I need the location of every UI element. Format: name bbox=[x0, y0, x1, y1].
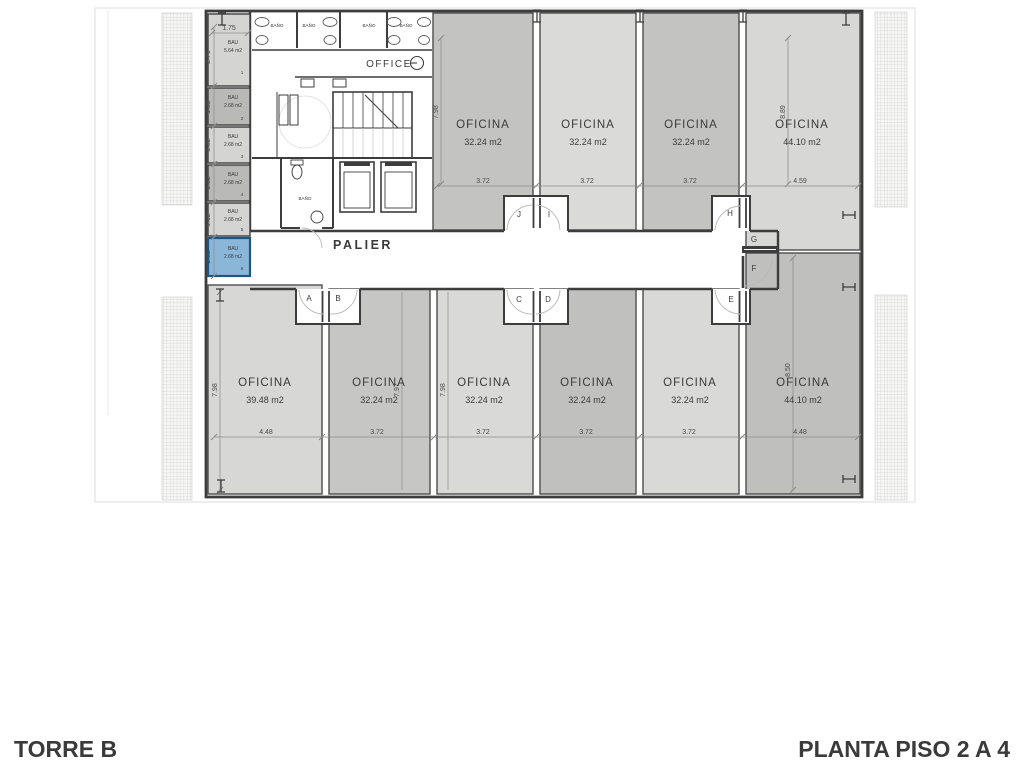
office-bottom-3-area: 32.24 m2 bbox=[465, 395, 503, 405]
office-bottom-4-label: OFICINA bbox=[560, 377, 614, 389]
door-letter-i: I bbox=[548, 210, 550, 219]
door-letter-c: C bbox=[516, 295, 522, 304]
bau-3-num: 3 bbox=[241, 154, 244, 159]
office-top-2-label: OFICINA bbox=[561, 119, 615, 131]
dim-bot-6: 4.48 bbox=[793, 429, 807, 436]
bau-2-area: 2.68 m2 bbox=[224, 103, 242, 109]
dim-bot-h3: 7.98 bbox=[440, 383, 447, 397]
office-bottom-4-area: 32.24 m2 bbox=[568, 395, 606, 405]
dim-bau-w: 1.75 bbox=[222, 25, 236, 32]
bau-4-num: 4 bbox=[241, 192, 244, 197]
dim-top-1: 3.72 bbox=[476, 178, 490, 185]
dim-bot-4: 3.72 bbox=[579, 429, 593, 436]
door-g-bar bbox=[742, 246, 778, 253]
office-bottom-5-area: 32.24 m2 bbox=[671, 395, 709, 405]
office-top-1-area: 32.24 m2 bbox=[464, 137, 502, 147]
dim-bau-6: 1.32 bbox=[205, 250, 212, 264]
bano-label-4: BAÑO bbox=[399, 22, 412, 28]
bano-label-core: BAÑO bbox=[298, 195, 311, 201]
plan-title: PLANTA PISO 2 A 4 bbox=[798, 736, 1010, 762]
office-bottom-6-area: 44.10 m2 bbox=[784, 395, 822, 405]
office-top-2-area: 32.24 m2 bbox=[569, 137, 607, 147]
bau-1-area: 5.64 m2 bbox=[224, 48, 242, 54]
dim-top-2: 3.72 bbox=[580, 178, 594, 185]
bano-label-1: BAÑO bbox=[270, 22, 283, 28]
office-bottom-1-area: 39.48 m2 bbox=[246, 395, 284, 405]
dim-top-h1: 7.98 bbox=[433, 105, 440, 119]
bau-4-title: BAU bbox=[228, 172, 239, 178]
office-top-3-area: 32.24 m2 bbox=[672, 137, 710, 147]
bano-label-2: BAÑO bbox=[302, 22, 315, 28]
bau-5-area: 2.68 m2 bbox=[224, 217, 242, 223]
bau-2-title: BAU bbox=[228, 95, 239, 101]
dim-bot-3: 3.72 bbox=[476, 429, 490, 436]
door-letter-e: E bbox=[728, 295, 733, 304]
office-top-1-label: OFICINA bbox=[456, 119, 510, 131]
bau-1-num: 1 bbox=[241, 70, 244, 75]
bau-4-area: 2.68 m2 bbox=[224, 180, 242, 186]
door-letter-j: J bbox=[517, 210, 521, 219]
bau-6-area: 2.68 m2 bbox=[224, 254, 242, 260]
dim-bot-2: 3.72 bbox=[370, 429, 384, 436]
hatch-right-bottom bbox=[875, 295, 907, 500]
palier-label: PALIER bbox=[333, 238, 393, 252]
dim-bau-1: 2.71 bbox=[205, 50, 212, 64]
dim-top-4: 4.59 bbox=[793, 178, 807, 185]
bau-5-title: BAU bbox=[228, 209, 239, 215]
footer: TORRE B PLANTA PISO 2 A 4 bbox=[14, 736, 1010, 762]
office-bottom-3-label: OFICINA bbox=[457, 377, 511, 389]
door-letter-g: G bbox=[751, 235, 757, 244]
door-letter-b: B bbox=[335, 294, 340, 303]
floor-plan-drawing: BAU 5.64 m2 1 BAU 2.68 m2 2 BAU 2.68 m2 … bbox=[0, 0, 1024, 768]
office-bottom-1-label: OFICINA bbox=[238, 377, 292, 389]
bau-2-num: 2 bbox=[241, 116, 244, 121]
door-letter-f: F bbox=[752, 264, 757, 273]
dim-bau-2: 1.32 bbox=[205, 100, 212, 114]
tower-title: TORRE B bbox=[14, 736, 117, 762]
hatch-left-top bbox=[162, 13, 192, 205]
bau-3-title: BAU bbox=[228, 134, 239, 140]
dim-bot-1: 4.48 bbox=[259, 429, 273, 436]
dim-top-3: 3.72 bbox=[683, 178, 697, 185]
hatch-right-top bbox=[875, 12, 907, 207]
office-bottom-2-area: 32.24 m2 bbox=[360, 395, 398, 405]
door-letter-h: H bbox=[727, 209, 733, 218]
bau-1-title: BAU bbox=[228, 40, 239, 46]
office-top-4-area: 44.10 m2 bbox=[783, 137, 821, 147]
bau-6-num: 6 bbox=[241, 266, 244, 271]
dim-bot-5: 3.72 bbox=[682, 429, 696, 436]
office-top-4-label: OFICINA bbox=[775, 119, 829, 131]
floor-plan-page: BAU 5.64 m2 1 BAU 2.68 m2 2 BAU 2.68 m2 … bbox=[0, 0, 1024, 768]
door-letter-a: A bbox=[306, 294, 312, 303]
dim-bau-3: 1.32 bbox=[205, 138, 212, 152]
hatch-left-bottom bbox=[162, 297, 192, 500]
dim-bot-h1: 7.98 bbox=[212, 383, 219, 397]
office-top-3-label: OFICINA bbox=[664, 119, 718, 131]
office-bottom-2-label: OFICINA bbox=[352, 377, 406, 389]
bau-3-area: 2.68 m2 bbox=[224, 142, 242, 148]
bau-6-title: BAU bbox=[228, 246, 239, 252]
dim-bau-4: 1.32 bbox=[205, 176, 212, 190]
office-bottom-6-label: OFICINA bbox=[776, 377, 830, 389]
office-bottom-5-label: OFICINA bbox=[663, 377, 717, 389]
bano-label-3: BAÑO bbox=[362, 22, 375, 28]
dim-bau-5: 1.32 bbox=[205, 213, 212, 227]
office-label: OFFICE bbox=[366, 59, 412, 70]
dim-top-h4: 8.89 bbox=[780, 105, 787, 119]
door-letter-d: D bbox=[545, 295, 551, 304]
dim-bot-h6: 8.50 bbox=[785, 363, 792, 377]
bau-5-num: 5 bbox=[241, 227, 244, 232]
